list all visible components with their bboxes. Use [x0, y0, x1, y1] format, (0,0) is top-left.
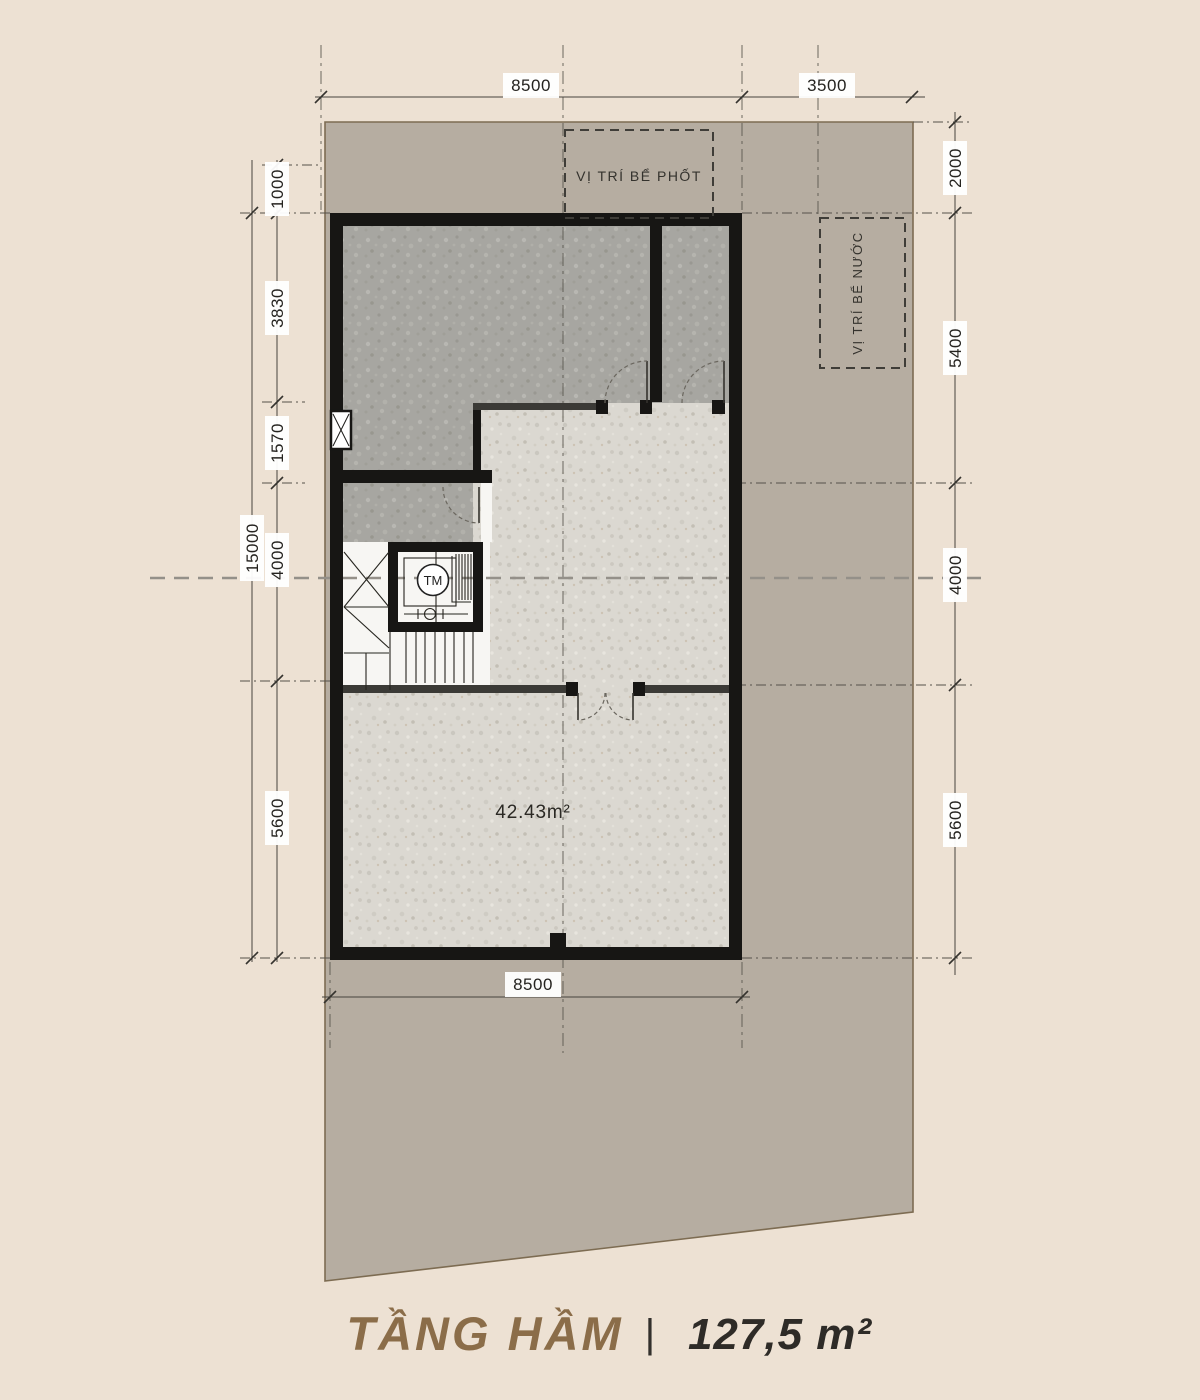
dim-right-4000: 4000 [946, 555, 965, 595]
plan-title-name: TẦNG HẦM [346, 1307, 623, 1360]
elevator-label: TM [424, 573, 443, 588]
dim-right-5400: 5400 [946, 328, 965, 368]
dim-left-1570: 1570 [268, 423, 287, 463]
dimension-top: 8500 3500 [315, 73, 925, 103]
dim-top-8500: 8500 [511, 76, 551, 95]
dim-left-1000: 1000 [268, 169, 287, 209]
plan-title-separator: | [645, 1312, 655, 1356]
room-area-label: 42.43m² [495, 802, 570, 823]
dimension-left: 1000 3830 1570 4000 5600 15000 [240, 159, 289, 964]
floor-plan-canvas: TM VỊ TRÍ BỂ PHỐT VỊ TRÍ BỂ NƯỚC 42.43m²… [0, 0, 1200, 1400]
vent-box [331, 411, 351, 449]
plan-title-area: 127,5 m² [688, 1310, 872, 1359]
dim-top-3500: 3500 [807, 76, 847, 95]
dim-right-5600: 5600 [946, 800, 965, 840]
dimension-right: 2000 5400 4000 5600 [943, 112, 967, 975]
plan-title: TẦNG HẦM | 127,5 m² [346, 1307, 872, 1360]
water-tank-label: VỊ TRÍ BỂ NƯỚC [850, 231, 865, 354]
dim-left-5600: 5600 [268, 798, 287, 838]
dim-left-15000: 15000 [243, 523, 262, 573]
dim-right-2000: 2000 [946, 148, 965, 188]
septic-tank-label: VỊ TRÍ BỂ PHỐT [576, 167, 702, 184]
dim-left-3830: 3830 [268, 288, 287, 328]
dim-left-4000: 4000 [268, 540, 287, 580]
dim-bottom-8500: 8500 [513, 975, 553, 994]
